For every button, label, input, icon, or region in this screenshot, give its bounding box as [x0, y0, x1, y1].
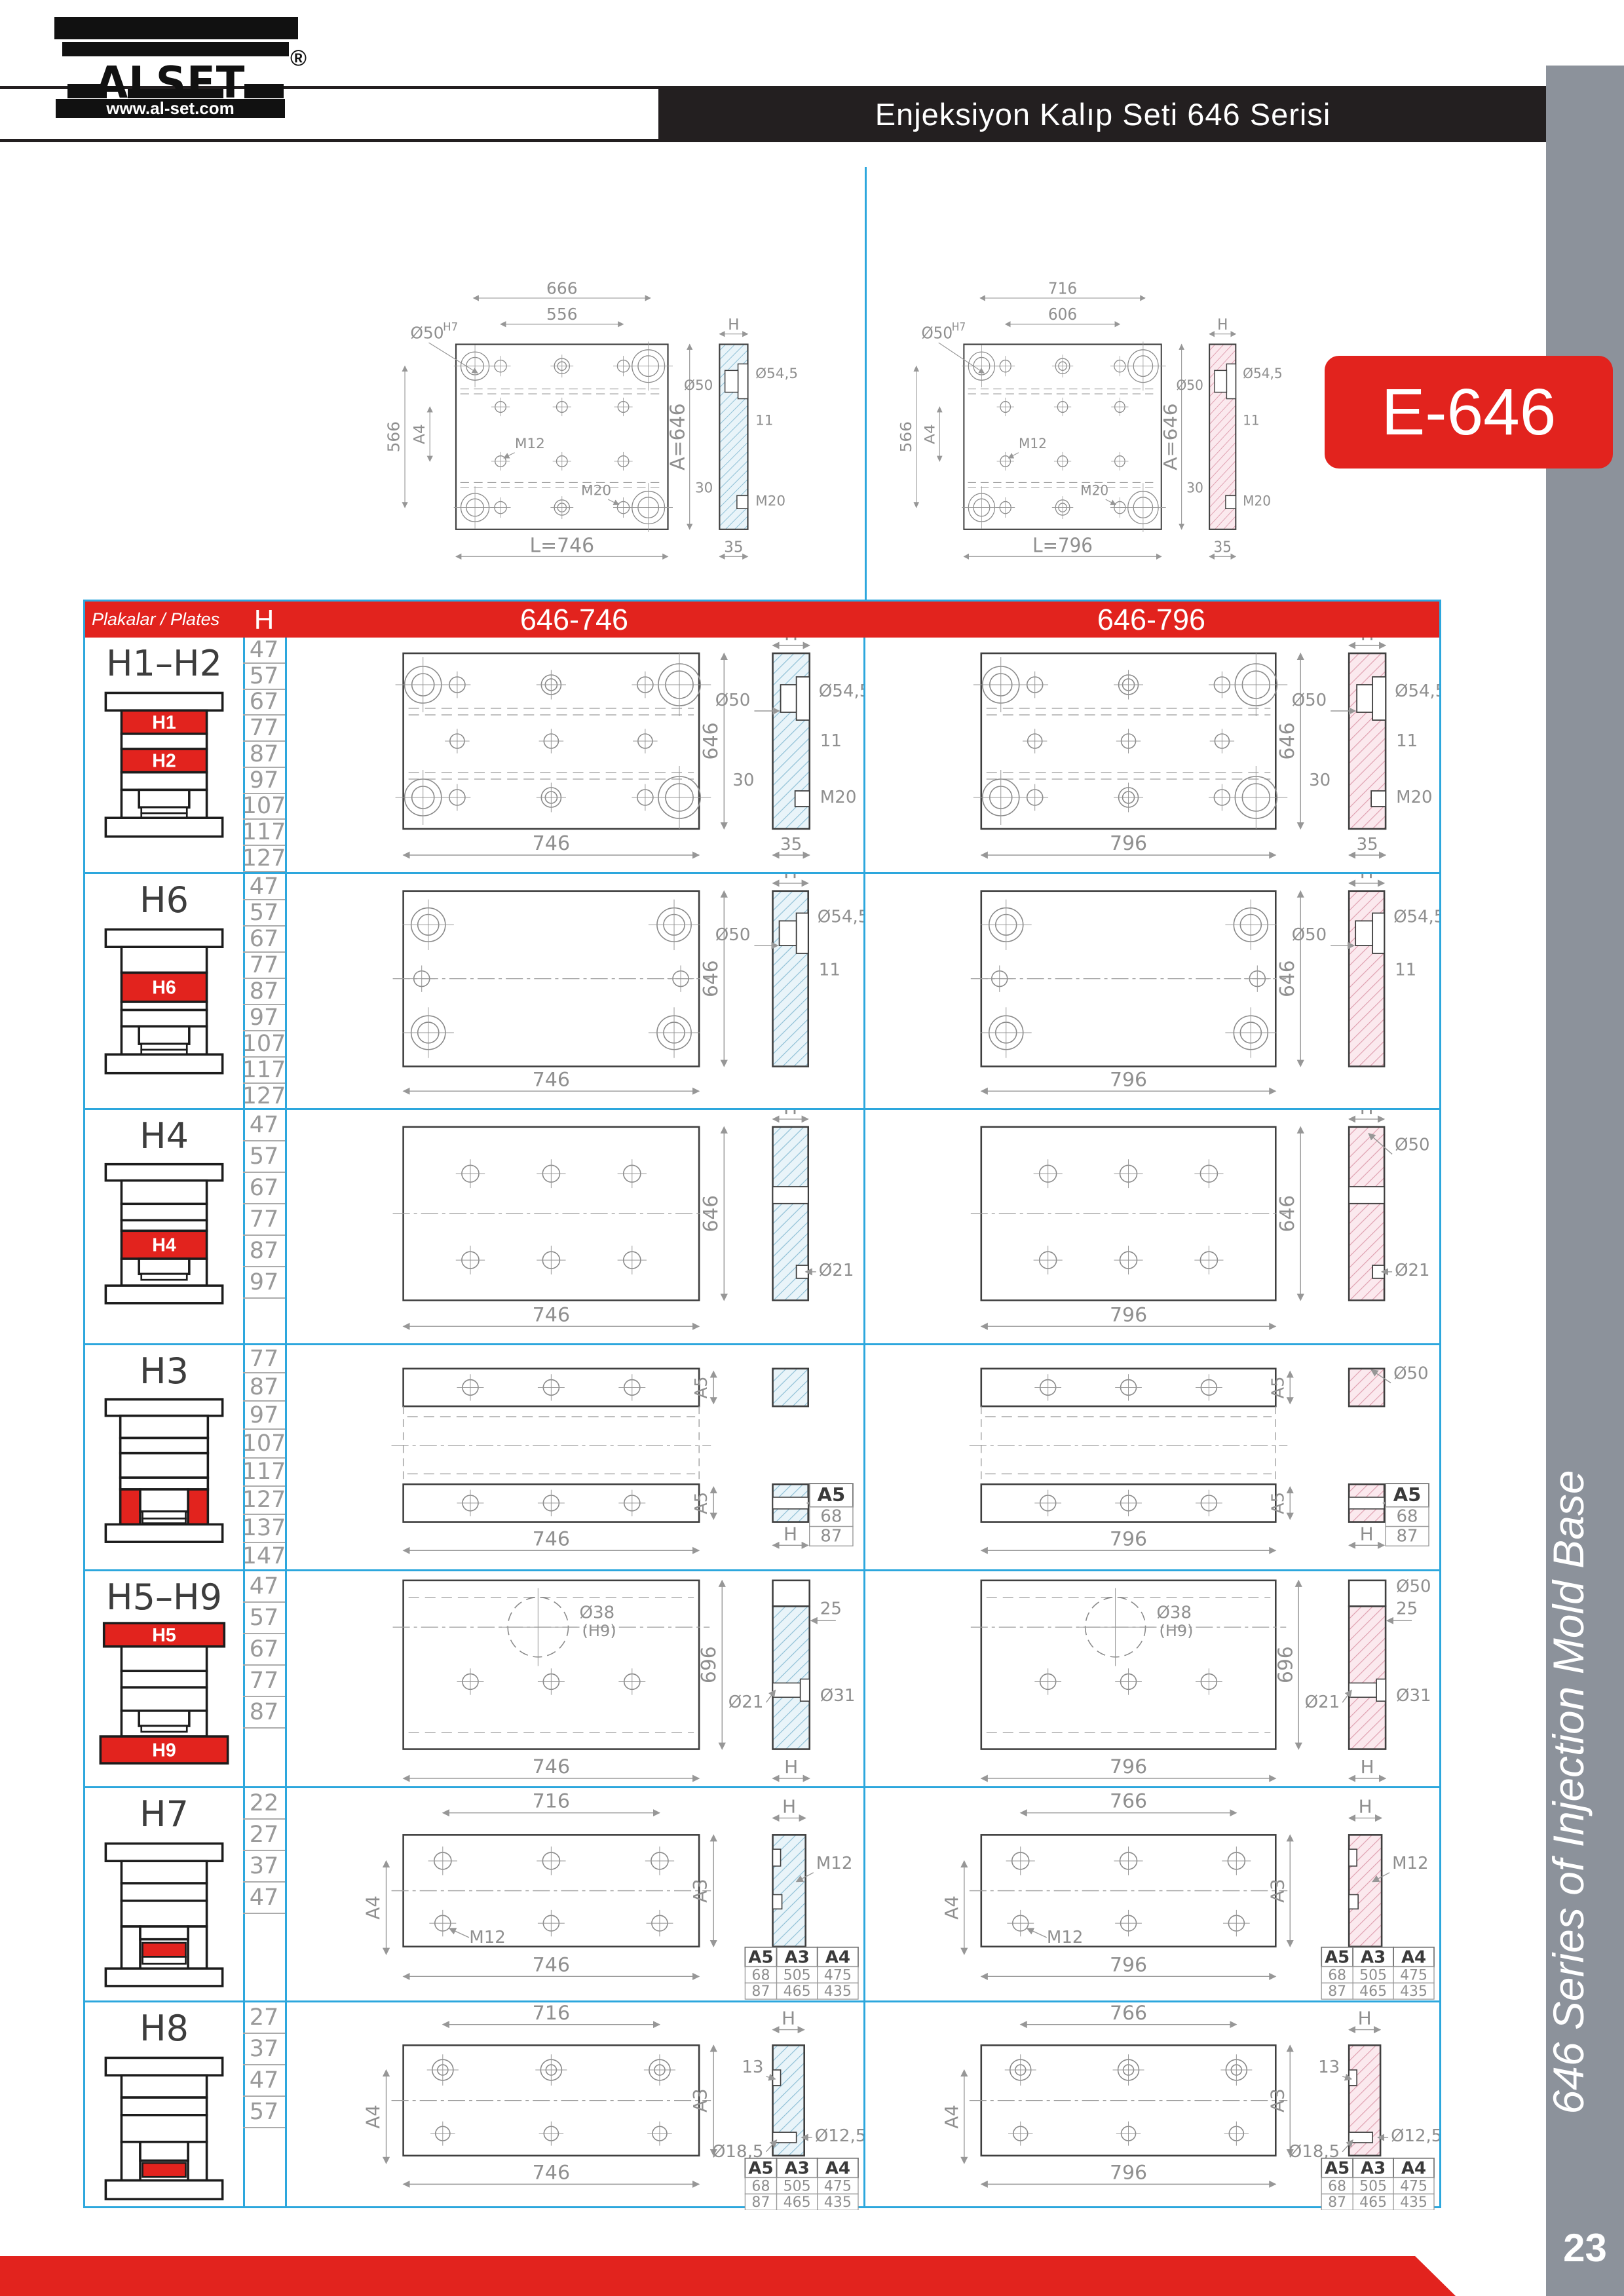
- h-value: 87: [243, 1236, 285, 1267]
- plates-cell: H7: [85, 1788, 243, 2000]
- svg-text:13: 13: [742, 2057, 763, 2077]
- logo-bar-2: [62, 42, 289, 56]
- table-row: H3 778797107117127137147 A5A5746Ø21HA568…: [85, 1343, 1439, 1569]
- svg-text:11: 11: [820, 731, 842, 751]
- h-value: 67: [243, 690, 285, 716]
- svg-text:13: 13: [1318, 2057, 1340, 2077]
- svg-text:A4: A4: [1401, 2159, 1426, 2179]
- table-row: H4 H4 475767778797 646746HØ21 646796HØ50…: [85, 1108, 1439, 1343]
- svg-text:87: 87: [1397, 1526, 1418, 1546]
- svg-text:87: 87: [1328, 1983, 1346, 2000]
- svg-text:Ø38: Ø38: [1156, 1603, 1191, 1622]
- svg-text:M20: M20: [755, 493, 785, 509]
- svg-text:746: 746: [533, 1755, 570, 1778]
- footer-red-band: [0, 2256, 1456, 2296]
- h-value: 87: [243, 1697, 285, 1729]
- svg-text:746: 746: [533, 1954, 570, 1977]
- svg-text:H: H: [784, 1523, 797, 1545]
- svg-text:Ø50: Ø50: [715, 925, 751, 945]
- cell-646-796: 646796HØ50Ø54,511: [863, 874, 1439, 1108]
- svg-text:646: 646: [1276, 722, 1299, 759]
- cell-646-796: 766A4A3M12796HM12A5A3A46850547587465435: [863, 1788, 1439, 2000]
- plate-drawing-646-746: 646746HØ50Ø54,511: [285, 874, 863, 1108]
- plate-drawing-646-746: Ø38(H9)69674625Ø21Ø31H: [285, 1571, 863, 1786]
- svg-text:30: 30: [1186, 480, 1203, 496]
- svg-text:435: 435: [824, 1983, 852, 2000]
- h-value: 77: [243, 953, 285, 979]
- plate-drawing-646-796: 646796HØ50Ø54,511: [863, 874, 1439, 1108]
- h-value: 107: [243, 794, 285, 820]
- svg-text:Ø50: Ø50: [1176, 377, 1203, 394]
- plates-table: Plakalar / Plates H 646-746 646-796 H1–H…: [83, 600, 1441, 2208]
- svg-text:A5: A5: [748, 1948, 773, 1968]
- mold-stack-icon: [97, 1392, 231, 1546]
- table-row: H5–H9 H5 H9 4757677787 Ø38(H9)69674625Ø2…: [85, 1569, 1439, 1786]
- svg-text:30: 30: [732, 771, 754, 790]
- svg-text:68: 68: [1397, 1507, 1418, 1527]
- svg-text:746: 746: [533, 1303, 570, 1326]
- svg-text:H: H: [1359, 1796, 1372, 1818]
- h-value: 57: [243, 1603, 285, 1634]
- svg-text:A=646: A=646: [1160, 403, 1181, 470]
- svg-text:Ø54,5: Ø54,5: [818, 908, 863, 927]
- table-header: Plakalar / Plates H 646-746 646-796: [85, 602, 1439, 638]
- h-value: 147: [243, 1543, 285, 1571]
- svg-text:H: H: [784, 1110, 797, 1119]
- plate-drawing-646-796: 646796HØ50Ø54,51130M2035: [863, 638, 1439, 872]
- h-value: 22: [243, 1788, 285, 1820]
- h-value: 137: [243, 1515, 285, 1543]
- h-value: 97: [243, 1005, 285, 1031]
- svg-text:A5: A5: [1325, 2159, 1350, 2179]
- svg-text:Ø50: Ø50: [1292, 925, 1327, 945]
- h-value: 97: [243, 1402, 285, 1430]
- h-values-cell: 475767778797107117127: [243, 638, 285, 872]
- svg-text:Ø54,5: Ø54,5: [1395, 681, 1439, 701]
- svg-text:11: 11: [1396, 731, 1418, 751]
- svg-text:30: 30: [1309, 771, 1331, 790]
- plate-drawing-646-746: 716A4A3M12746HM12A5A3A46850547587465435: [285, 1788, 863, 2000]
- svg-text:H: H: [782, 1796, 796, 1818]
- svg-text:A5: A5: [1268, 1376, 1288, 1398]
- svg-text:Ø54,5: Ø54,5: [1243, 365, 1283, 381]
- svg-text:A3: A3: [784, 1948, 809, 1968]
- svg-text:L=796: L=796: [1032, 534, 1093, 557]
- svg-text:Ø50: Ø50: [715, 691, 751, 710]
- h-values-cell: 778797107117127137147: [243, 1345, 285, 1569]
- cell-646-746: 646746HØ21: [285, 1110, 863, 1343]
- col-header-646-796: 646-796: [863, 602, 1439, 638]
- svg-text:A5: A5: [692, 1492, 711, 1514]
- svg-text:435: 435: [1400, 2194, 1427, 2210]
- svg-text:465: 465: [1359, 2194, 1387, 2210]
- mold-icon-slot: H1 H2: [85, 685, 243, 843]
- mold-stack-icon: H6: [97, 921, 231, 1079]
- master-drawing-646-746: 666556Ø50H7M12M20566A4A=646L=746HØ50Ø54,…: [364, 282, 842, 586]
- plate-drawing-646-796: 766A4A3796H13Ø18,5Ø12,5A5A3A468505475874…: [863, 2002, 1439, 2210]
- mold-icon-slot: H5 H9: [85, 1618, 243, 1768]
- svg-text:505: 505: [784, 1967, 811, 1983]
- svg-text:475: 475: [1400, 1967, 1427, 1983]
- h-value: 67: [243, 1173, 285, 1204]
- svg-text:H7: H7: [952, 320, 966, 334]
- svg-text:646: 646: [1276, 1195, 1299, 1233]
- svg-text:Ø54,5: Ø54,5: [819, 681, 863, 701]
- svg-text:M20: M20: [1396, 788, 1432, 807]
- svg-text:716: 716: [533, 2002, 570, 2025]
- svg-text:Ø12,5: Ø12,5: [1391, 2126, 1439, 2146]
- h-values-cell: 22273747: [243, 1788, 285, 2000]
- svg-text:A4: A4: [941, 1896, 962, 1920]
- svg-text:A4: A4: [1401, 1948, 1426, 1968]
- cell-646-746: 716A4A3746H13Ø18,5Ø12,5A5A3A468505475874…: [285, 2002, 863, 2210]
- svg-text:Ø50: Ø50: [921, 324, 953, 343]
- svg-text:796: 796: [1110, 1068, 1147, 1091]
- svg-text:Ø38: Ø38: [580, 1603, 615, 1622]
- svg-text:35: 35: [1357, 835, 1378, 854]
- svg-text:Ø54,5: Ø54,5: [755, 366, 798, 382]
- svg-text:505: 505: [784, 2178, 811, 2194]
- svg-text:646: 646: [700, 722, 723, 759]
- h-value: 67: [243, 1634, 285, 1666]
- svg-text:11: 11: [819, 961, 840, 980]
- svg-text:646: 646: [700, 960, 723, 997]
- page-title-band: Enjeksiyon Kalıp Seti 646 Serisi: [658, 86, 1547, 142]
- svg-text:566: 566: [897, 421, 915, 453]
- row-title: H3: [85, 1350, 243, 1392]
- svg-text:M20: M20: [1080, 482, 1108, 499]
- svg-text:A5: A5: [1393, 1483, 1422, 1506]
- row-title: H4: [85, 1115, 243, 1157]
- svg-text:M12: M12: [515, 436, 545, 452]
- svg-text:A3: A3: [1361, 2159, 1386, 2179]
- svg-text:A4: A4: [825, 2159, 850, 2179]
- cell-646-796: A5A5796Ø50Ø21HA56887: [863, 1345, 1439, 1569]
- svg-text:L=746: L=746: [529, 535, 594, 558]
- plates-cell: H1–H2 H1 H2: [85, 638, 243, 872]
- logo-base-left: [67, 84, 107, 98]
- table-row: H1–H2 H1 H2 475767778797107117127 646746…: [85, 638, 1439, 872]
- table-row: H6 H6 475767778797107117127 646746HØ50Ø5…: [85, 872, 1439, 1108]
- h-value: 47: [243, 1571, 285, 1603]
- svg-text:A5: A5: [817, 1483, 845, 1506]
- svg-text:796: 796: [1110, 1303, 1147, 1326]
- logo-website: www.al-set.com: [56, 99, 285, 118]
- svg-text:H: H: [1361, 638, 1374, 645]
- svg-text:H: H: [1360, 1523, 1374, 1544]
- logo-base-right: [244, 84, 284, 98]
- svg-text:766: 766: [1110, 2002, 1147, 2025]
- svg-text:H4: H4: [152, 1234, 176, 1255]
- svg-text:87: 87: [751, 1983, 770, 2000]
- svg-text:746: 746: [533, 2162, 570, 2185]
- h-value: 87: [243, 979, 285, 1005]
- svg-text:A5: A5: [692, 1376, 711, 1398]
- cell-646-796: 646796HØ50Ø21: [863, 1110, 1439, 1343]
- plates-cell: H4 H4: [85, 1110, 243, 1343]
- h-value: 47: [243, 1883, 285, 1914]
- svg-text:716: 716: [1048, 282, 1077, 297]
- svg-text:475: 475: [824, 2178, 852, 2194]
- row-title: H5–H9: [85, 1577, 243, 1618]
- plate-drawing-646-746: A5A5746Ø21HA56887: [285, 1345, 863, 1569]
- svg-text:H6: H6: [152, 978, 176, 999]
- svg-text:Ø50: Ø50: [410, 323, 444, 342]
- h-value: 127: [243, 1487, 285, 1515]
- svg-text:Ø21: Ø21: [1305, 1693, 1340, 1712]
- series-badge: E-646: [1325, 356, 1613, 469]
- h-value: 87: [243, 1373, 285, 1402]
- h-value: 97: [243, 1267, 285, 1299]
- mold-stack-icon: [97, 2050, 231, 2206]
- mold-icon-slot: H6: [85, 921, 243, 1079]
- mold-stack-icon: [97, 1835, 231, 1993]
- svg-text:H: H: [784, 638, 798, 645]
- mold-icon-slot: [85, 1392, 243, 1546]
- svg-text:796: 796: [1110, 1755, 1147, 1778]
- h-value: 77: [243, 1204, 285, 1236]
- svg-text:Ø50: Ø50: [1395, 1136, 1429, 1155]
- svg-text:475: 475: [1400, 2178, 1427, 2194]
- h-value: 47: [243, 2065, 285, 2097]
- h-value: 47: [243, 1110, 285, 1141]
- svg-text:87: 87: [1328, 2194, 1346, 2210]
- svg-text:A3: A3: [690, 1879, 711, 1903]
- svg-text:465: 465: [784, 2194, 811, 2210]
- svg-text:666: 666: [546, 282, 577, 297]
- h-value: 77: [243, 1345, 285, 1373]
- h-value: 117: [243, 820, 285, 846]
- svg-text:M12: M12: [816, 1854, 853, 1873]
- svg-text:H: H: [728, 316, 739, 334]
- svg-text:H: H: [784, 1756, 798, 1778]
- svg-text:A4: A4: [922, 424, 938, 444]
- svg-text:Ø12,5: Ø12,5: [815, 2126, 863, 2146]
- svg-text:H2: H2: [152, 751, 176, 772]
- svg-text:Ø31: Ø31: [1396, 1686, 1431, 1706]
- plates-cell: H3: [85, 1345, 243, 1569]
- svg-text:A4: A4: [362, 2105, 384, 2129]
- svg-text:35: 35: [1213, 539, 1232, 556]
- h-value: 27: [243, 2002, 285, 2034]
- h-value: 117: [243, 1058, 285, 1084]
- h-value: 77: [243, 716, 285, 742]
- mold-icon-slot: H4: [85, 1157, 243, 1311]
- h-value: 77: [243, 1666, 285, 1697]
- svg-text:A5: A5: [1325, 1948, 1350, 1968]
- svg-text:556: 556: [546, 305, 577, 324]
- plate-drawing-646-796: 766A4A3M12796HM12A5A3A46850547587465435: [863, 1788, 1439, 2000]
- logo-bar-1: [54, 17, 298, 39]
- svg-text:A3: A3: [690, 2088, 711, 2113]
- cell-646-796: 766A4A3796H13Ø18,5Ø12,5A5A3A468505475874…: [863, 2002, 1439, 2210]
- svg-text:Ø50: Ø50: [684, 377, 713, 394]
- h-value: 57: [243, 1141, 285, 1173]
- svg-text:696: 696: [1274, 1646, 1297, 1683]
- h-value: 57: [243, 664, 285, 690]
- cell-646-746: Ø38(H9)69674625Ø21Ø31H: [285, 1571, 863, 1786]
- svg-text:766: 766: [1110, 1790, 1147, 1813]
- h-value: 37: [243, 2034, 285, 2065]
- plates-cell: H8: [85, 2002, 243, 2210]
- mold-stack-icon: H4: [97, 1157, 231, 1311]
- h-value: 117: [243, 1459, 285, 1487]
- svg-text:505: 505: [1359, 2178, 1387, 2194]
- plate-drawing-646-746: 716A4A3746H13Ø18,5Ø12,5A5A3A468505475874…: [285, 2002, 863, 2210]
- h-values-cell: 27374757: [243, 2002, 285, 2210]
- svg-text:746: 746: [533, 1527, 570, 1550]
- svg-text:796: 796: [1110, 832, 1147, 855]
- column-divider-line: [865, 167, 867, 600]
- row-title: H8: [85, 2008, 243, 2049]
- mold-stack-icon: H5 H9: [97, 1618, 231, 1768]
- svg-text:H: H: [782, 2008, 795, 2029]
- svg-text:696: 696: [698, 1646, 721, 1683]
- svg-text:796: 796: [1110, 2162, 1147, 2185]
- series-badge-label: E-646: [1382, 375, 1557, 450]
- h-values-cell: 475767778797107117127: [243, 874, 285, 1108]
- h-value: 27: [243, 1820, 285, 1851]
- svg-text:M20: M20: [1243, 493, 1271, 509]
- svg-text:68: 68: [1328, 1967, 1346, 1983]
- svg-text:746: 746: [533, 832, 570, 855]
- svg-text:H: H: [1360, 1110, 1374, 1119]
- h-value: 67: [243, 927, 285, 953]
- svg-text:435: 435: [824, 2194, 852, 2210]
- svg-text:Ø54,5: Ø54,5: [1393, 907, 1439, 927]
- cell-646-746: 646746HØ50Ø54,51130M2035: [285, 638, 863, 872]
- svg-text:646: 646: [1276, 960, 1299, 997]
- svg-text:Ø21: Ø21: [728, 1693, 764, 1712]
- svg-text:H: H: [784, 874, 797, 883]
- mold-stack-icon: H1 H2: [97, 685, 231, 843]
- plates-cell: H5–H9 H5 H9: [85, 1571, 243, 1786]
- catalog-page: { "brand": {"name": "ALSET", "registered…: [0, 0, 1624, 2296]
- registered-mark: ®: [290, 46, 307, 71]
- cell-646-746: 716A4A3M12746HM12A5A3A46850547587465435: [285, 1788, 863, 2000]
- mold-icon-slot: [85, 1835, 243, 1993]
- plate-drawing-646-796: Ø38(H9)696796Ø5025Ø21Ø31H: [863, 1571, 1439, 1786]
- svg-text:(H9): (H9): [582, 1622, 616, 1640]
- svg-text:H: H: [1217, 316, 1228, 334]
- svg-text:435: 435: [1400, 1983, 1427, 2000]
- svg-text:716: 716: [533, 1790, 570, 1813]
- sidebar-vertical-text: 646 Series of Injection Mold Base: [1543, 1356, 1593, 2228]
- table-row: H8 27374757 716A4A3746H13Ø18,5Ø12,5A5A3A…: [85, 2000, 1439, 2210]
- svg-text:A3: A3: [1266, 2088, 1288, 2113]
- col-header-plates: Plakalar / Plates: [92, 602, 242, 638]
- svg-text:30: 30: [695, 480, 713, 496]
- logo-base-center: [128, 89, 223, 98]
- cell-646-746: A5A5746Ø21HA56887: [285, 1345, 863, 1569]
- plate-drawing-646-746: 646746HØ50Ø54,51130M2035: [285, 638, 863, 872]
- svg-text:A4: A4: [825, 1948, 850, 1968]
- svg-text:M20: M20: [581, 482, 611, 499]
- page-number: 23: [1546, 2225, 1624, 2270]
- h-value: 107: [243, 1031, 285, 1058]
- svg-text:H: H: [1360, 874, 1374, 883]
- svg-text:Ø50: Ø50: [1396, 1577, 1431, 1597]
- svg-text:68: 68: [1328, 2178, 1346, 2194]
- svg-text:A=646: A=646: [666, 403, 689, 470]
- svg-text:M12: M12: [1047, 1928, 1083, 1947]
- svg-text:M12: M12: [1392, 1854, 1428, 1873]
- svg-text:11: 11: [755, 412, 773, 429]
- svg-text:68: 68: [751, 1967, 770, 1983]
- svg-text:35: 35: [780, 835, 802, 854]
- cell-646-746: 646746HØ50Ø54,511: [285, 874, 863, 1108]
- svg-text:H1: H1: [152, 712, 176, 733]
- svg-text:25: 25: [820, 1599, 842, 1619]
- h-values-cell: 4757677787: [243, 1571, 285, 1786]
- svg-text:566: 566: [385, 421, 404, 453]
- svg-text:Ø21: Ø21: [1395, 1261, 1429, 1280]
- svg-text:A4: A4: [941, 2105, 962, 2129]
- svg-text:87: 87: [820, 1527, 842, 1546]
- page-title: Enjeksiyon Kalıp Seti 646 Serisi: [875, 96, 1331, 132]
- svg-text:(H9): (H9): [1159, 1622, 1193, 1640]
- svg-text:A4: A4: [411, 424, 428, 444]
- svg-text:M20: M20: [820, 788, 857, 807]
- h-value: 57: [243, 2097, 285, 2128]
- h-value: 47: [243, 638, 285, 664]
- svg-text:H: H: [1358, 2008, 1372, 2029]
- svg-text:505: 505: [1359, 1967, 1387, 1983]
- svg-text:A3: A3: [1266, 1879, 1288, 1903]
- svg-text:H9: H9: [152, 1740, 176, 1761]
- svg-text:M12: M12: [1019, 435, 1047, 451]
- h-value: 127: [243, 1084, 285, 1110]
- svg-text:68: 68: [820, 1507, 842, 1527]
- h-value: 47: [243, 874, 285, 900]
- header-rule-bottom: [0, 139, 658, 142]
- plate-drawing-646-796: A5A5796Ø50Ø21HA56887: [863, 1345, 1439, 1569]
- svg-text:H: H: [1361, 1756, 1374, 1778]
- svg-text:465: 465: [1359, 1983, 1387, 2000]
- cell-646-796: 646796HØ50Ø54,51130M2035: [863, 638, 1439, 872]
- svg-text:475: 475: [824, 1967, 852, 1983]
- svg-text:Ø31: Ø31: [820, 1686, 856, 1706]
- svg-text:Ø50: Ø50: [1292, 691, 1327, 710]
- h-value: 37: [243, 1851, 285, 1883]
- svg-text:465: 465: [784, 1983, 811, 2000]
- svg-text:A3: A3: [1361, 1948, 1386, 1968]
- svg-text:H7: H7: [443, 321, 458, 334]
- h-value: 97: [243, 768, 285, 794]
- h-values-cell: 475767778797: [243, 1110, 285, 1343]
- plate-drawing-646-796: 646796HØ50Ø21: [863, 1110, 1439, 1343]
- alset-logo: ® ALSET www.al-set.com: [49, 13, 311, 118]
- table-row: H7 22273747 716A4A3M12746HM12A5A3A468505…: [85, 1786, 1439, 2000]
- plate-drawing-646-746: 646746HØ21: [285, 1110, 863, 1343]
- row-title: H7: [85, 1793, 243, 1835]
- svg-text:H5: H5: [152, 1625, 176, 1646]
- svg-text:796: 796: [1110, 1527, 1147, 1550]
- row-title: H6: [85, 879, 243, 921]
- mold-icon-slot: [85, 2050, 243, 2206]
- row-title: H1–H2: [85, 643, 243, 684]
- col-header-h: H: [243, 602, 285, 638]
- svg-text:A4: A4: [362, 1896, 384, 1920]
- h-value: 107: [243, 1430, 285, 1458]
- svg-text:11: 11: [1243, 412, 1260, 429]
- table-rows: H1–H2 H1 H2 475767778797107117127 646746…: [85, 638, 1439, 2210]
- svg-text:746: 746: [533, 1068, 570, 1091]
- svg-text:35: 35: [724, 539, 744, 556]
- svg-text:606: 606: [1048, 305, 1077, 324]
- svg-text:A5: A5: [748, 2159, 773, 2179]
- h-value: 57: [243, 900, 285, 927]
